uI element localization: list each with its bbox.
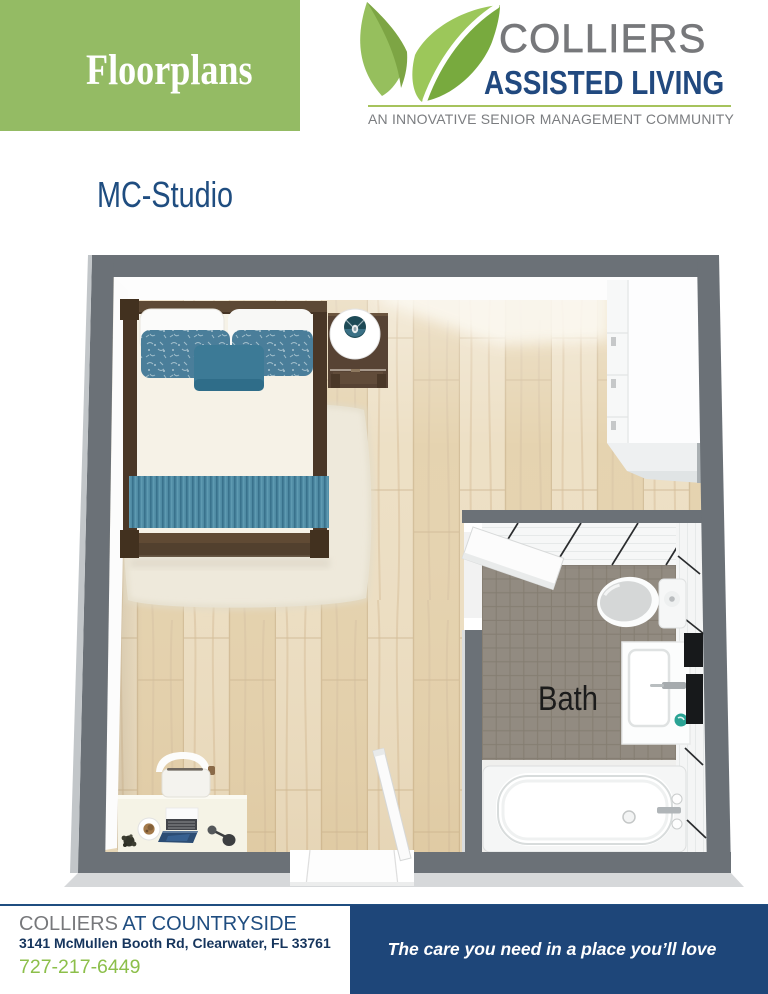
svg-text:Bath: Bath — [538, 680, 598, 718]
